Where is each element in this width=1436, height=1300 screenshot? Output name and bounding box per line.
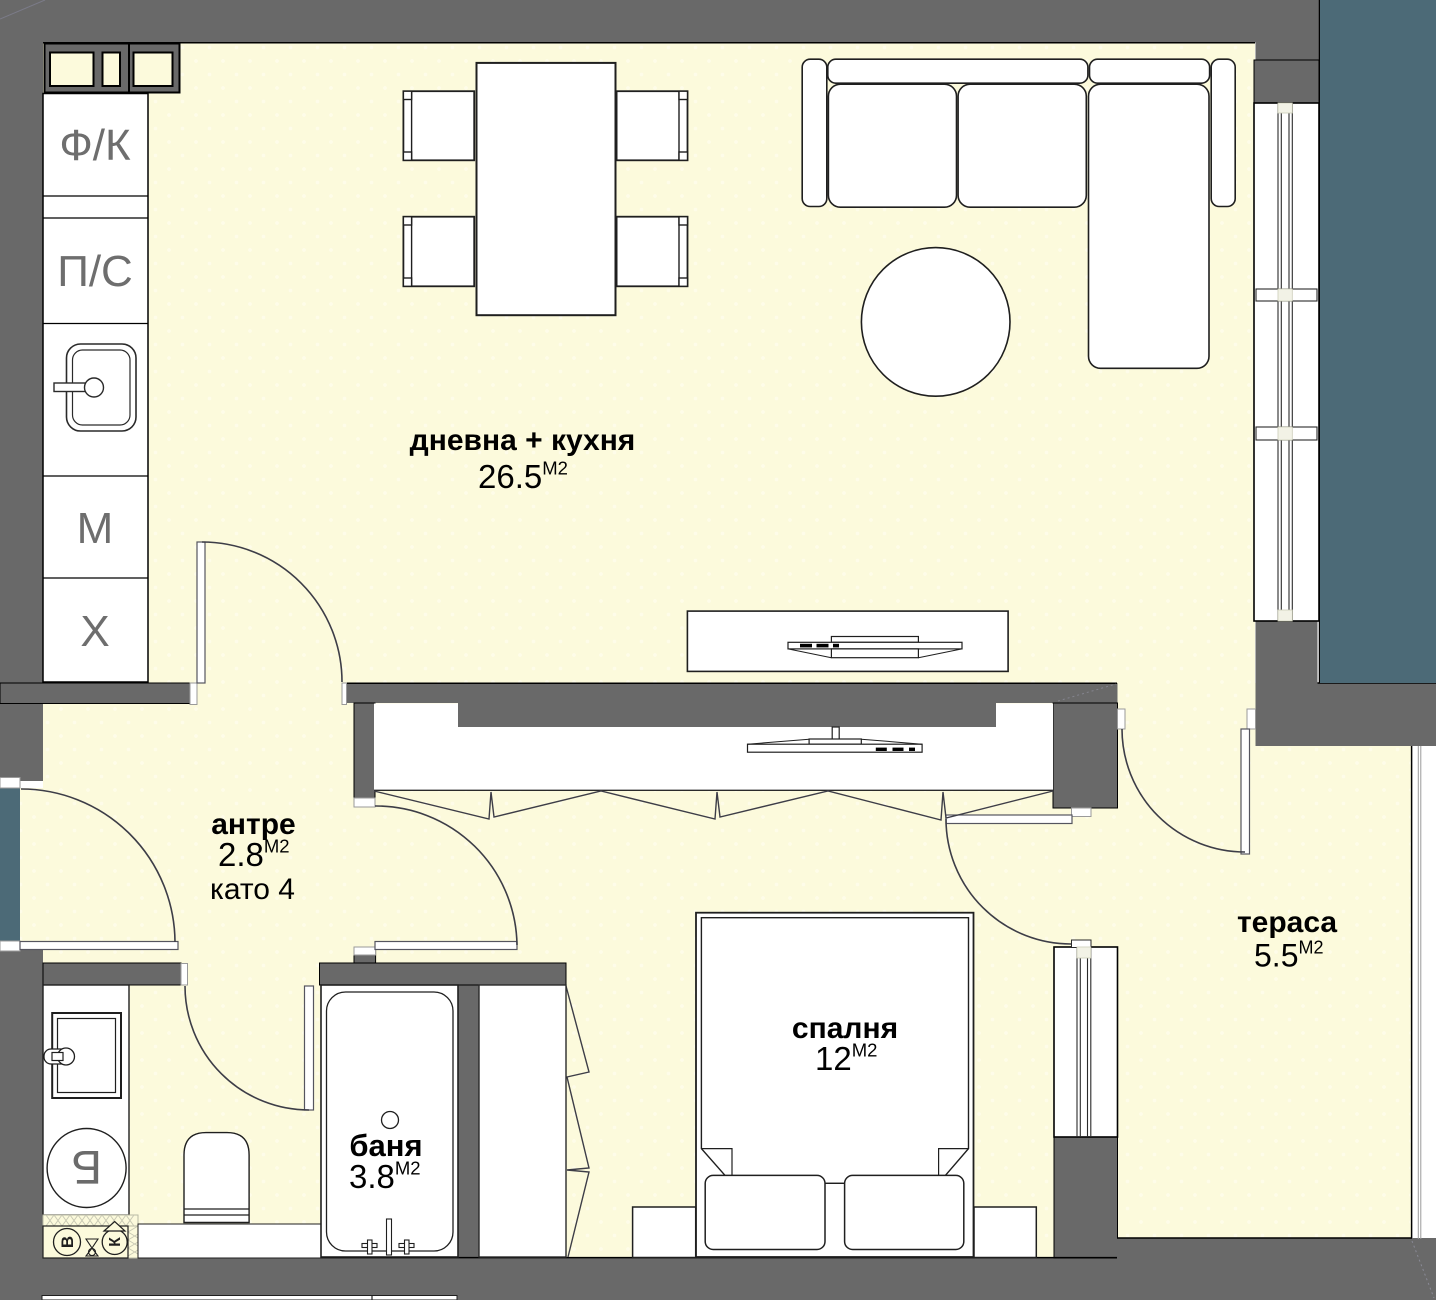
svg-text:В: В bbox=[58, 1236, 77, 1248]
svg-text:К: К bbox=[107, 1237, 124, 1247]
svg-text:П/С: П/С bbox=[57, 247, 133, 296]
svg-text:дневна + кухня: дневна + кухня bbox=[410, 424, 636, 457]
svg-text:Б: Б bbox=[71, 1141, 102, 1194]
svg-text:като 4: като 4 bbox=[210, 873, 295, 906]
svg-text:М: М bbox=[77, 504, 114, 553]
svg-text:тераса: тераса bbox=[1237, 906, 1337, 939]
svg-text:Х: Х bbox=[80, 607, 109, 656]
svg-text:Ф/К: Ф/К bbox=[59, 121, 131, 170]
